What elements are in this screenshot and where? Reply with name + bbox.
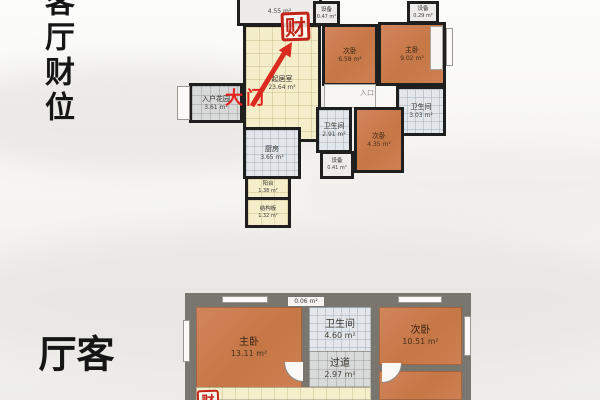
room-label: 结构板	[260, 206, 277, 213]
room-bedroom-second-a: 次卧 6.58 m²	[322, 24, 378, 86]
window	[183, 320, 190, 362]
entry-double-door	[177, 86, 190, 120]
room-label: 卫生间	[324, 122, 345, 131]
room-area: 0.29 m²	[413, 13, 433, 19]
room-area: 0.47 m²	[317, 14, 337, 20]
window	[464, 316, 471, 356]
room-area: 3.03 m²	[409, 112, 433, 120]
room-label: 设备	[321, 7, 332, 14]
calligraphy-title-top: 客厅财位	[41, 0, 71, 126]
window	[398, 296, 442, 303]
room-bedroom-second-2: 次卧 10.51 m²	[379, 307, 462, 365]
room-area: 0.41 m²	[327, 165, 347, 171]
calligraphy-title-bottom: 客厅	[35, 334, 111, 400]
wealth-arrow	[242, 36, 304, 114]
room-area: 4.60 m²	[324, 331, 355, 341]
entrance-label: 入口	[360, 88, 374, 98]
room-area: 9.02 m²	[400, 55, 424, 63]
room-kitchen: 厨房 3.65 m²	[243, 127, 301, 179]
room-label: 阳台	[262, 181, 273, 188]
room-label: 过道	[330, 358, 350, 371]
room-bedroom-second-b: 次卧 4.35 m²	[354, 107, 404, 173]
room-label: 设备	[417, 6, 428, 13]
room-living-2	[196, 387, 371, 400]
room-structure-board: 结构板 1.32 m²	[245, 197, 291, 228]
room-area: 1.38 m²	[258, 188, 278, 194]
room-area: 6.58 m²	[338, 56, 362, 64]
wealth-stamp-2: 财	[197, 390, 220, 400]
window	[222, 296, 268, 303]
room-area: 3.65 m²	[260, 154, 284, 162]
room-bathroom-small: 卫生间 2.91 m²	[316, 107, 352, 153]
room-label: 次卧	[372, 132, 386, 141]
room-equipment-left: 设备 0.47 m²	[313, 1, 340, 26]
room-bathroom-2: 卫生间 4.60 m²	[309, 307, 371, 353]
duct-area-value: 0.06 m²	[294, 298, 318, 305]
fengshui-floorplan-poster: 客厅财位 客厅 4.55 m² 设备 0.47 m² 设备 0.29 m² 起居…	[0, 0, 600, 400]
room-area: 2.91 m²	[322, 131, 346, 139]
room-corridor: 过道 2.97 m²	[309, 351, 371, 387]
room-label: 卫生间	[411, 103, 432, 112]
room-area: 4.35 m²	[367, 141, 391, 149]
wardrobe	[430, 26, 443, 70]
room-label: 设备	[331, 158, 342, 165]
room-label: 主卧	[239, 337, 259, 350]
room-area: 10.51 m²	[402, 337, 438, 347]
room-equipment-mid: 设备 0.41 m²	[320, 151, 354, 179]
room-area: 13.11 m²	[231, 349, 267, 359]
room-area: 2.97 m²	[324, 370, 355, 380]
room-label: 厨房	[265, 145, 279, 154]
room-area: 1.32 m²	[258, 213, 278, 219]
room-label: 次卧	[343, 47, 357, 56]
duct-area: 0.06 m²	[288, 297, 324, 306]
room-equipment-right: 设备 0.29 m²	[407, 1, 439, 24]
room-label: 次卧	[411, 325, 431, 338]
window	[446, 28, 453, 66]
room-label: 主卧	[405, 46, 419, 55]
room-label: 卫生间	[325, 319, 355, 332]
room-master-bedroom-2: 主卧 13.11 m²	[196, 307, 302, 389]
